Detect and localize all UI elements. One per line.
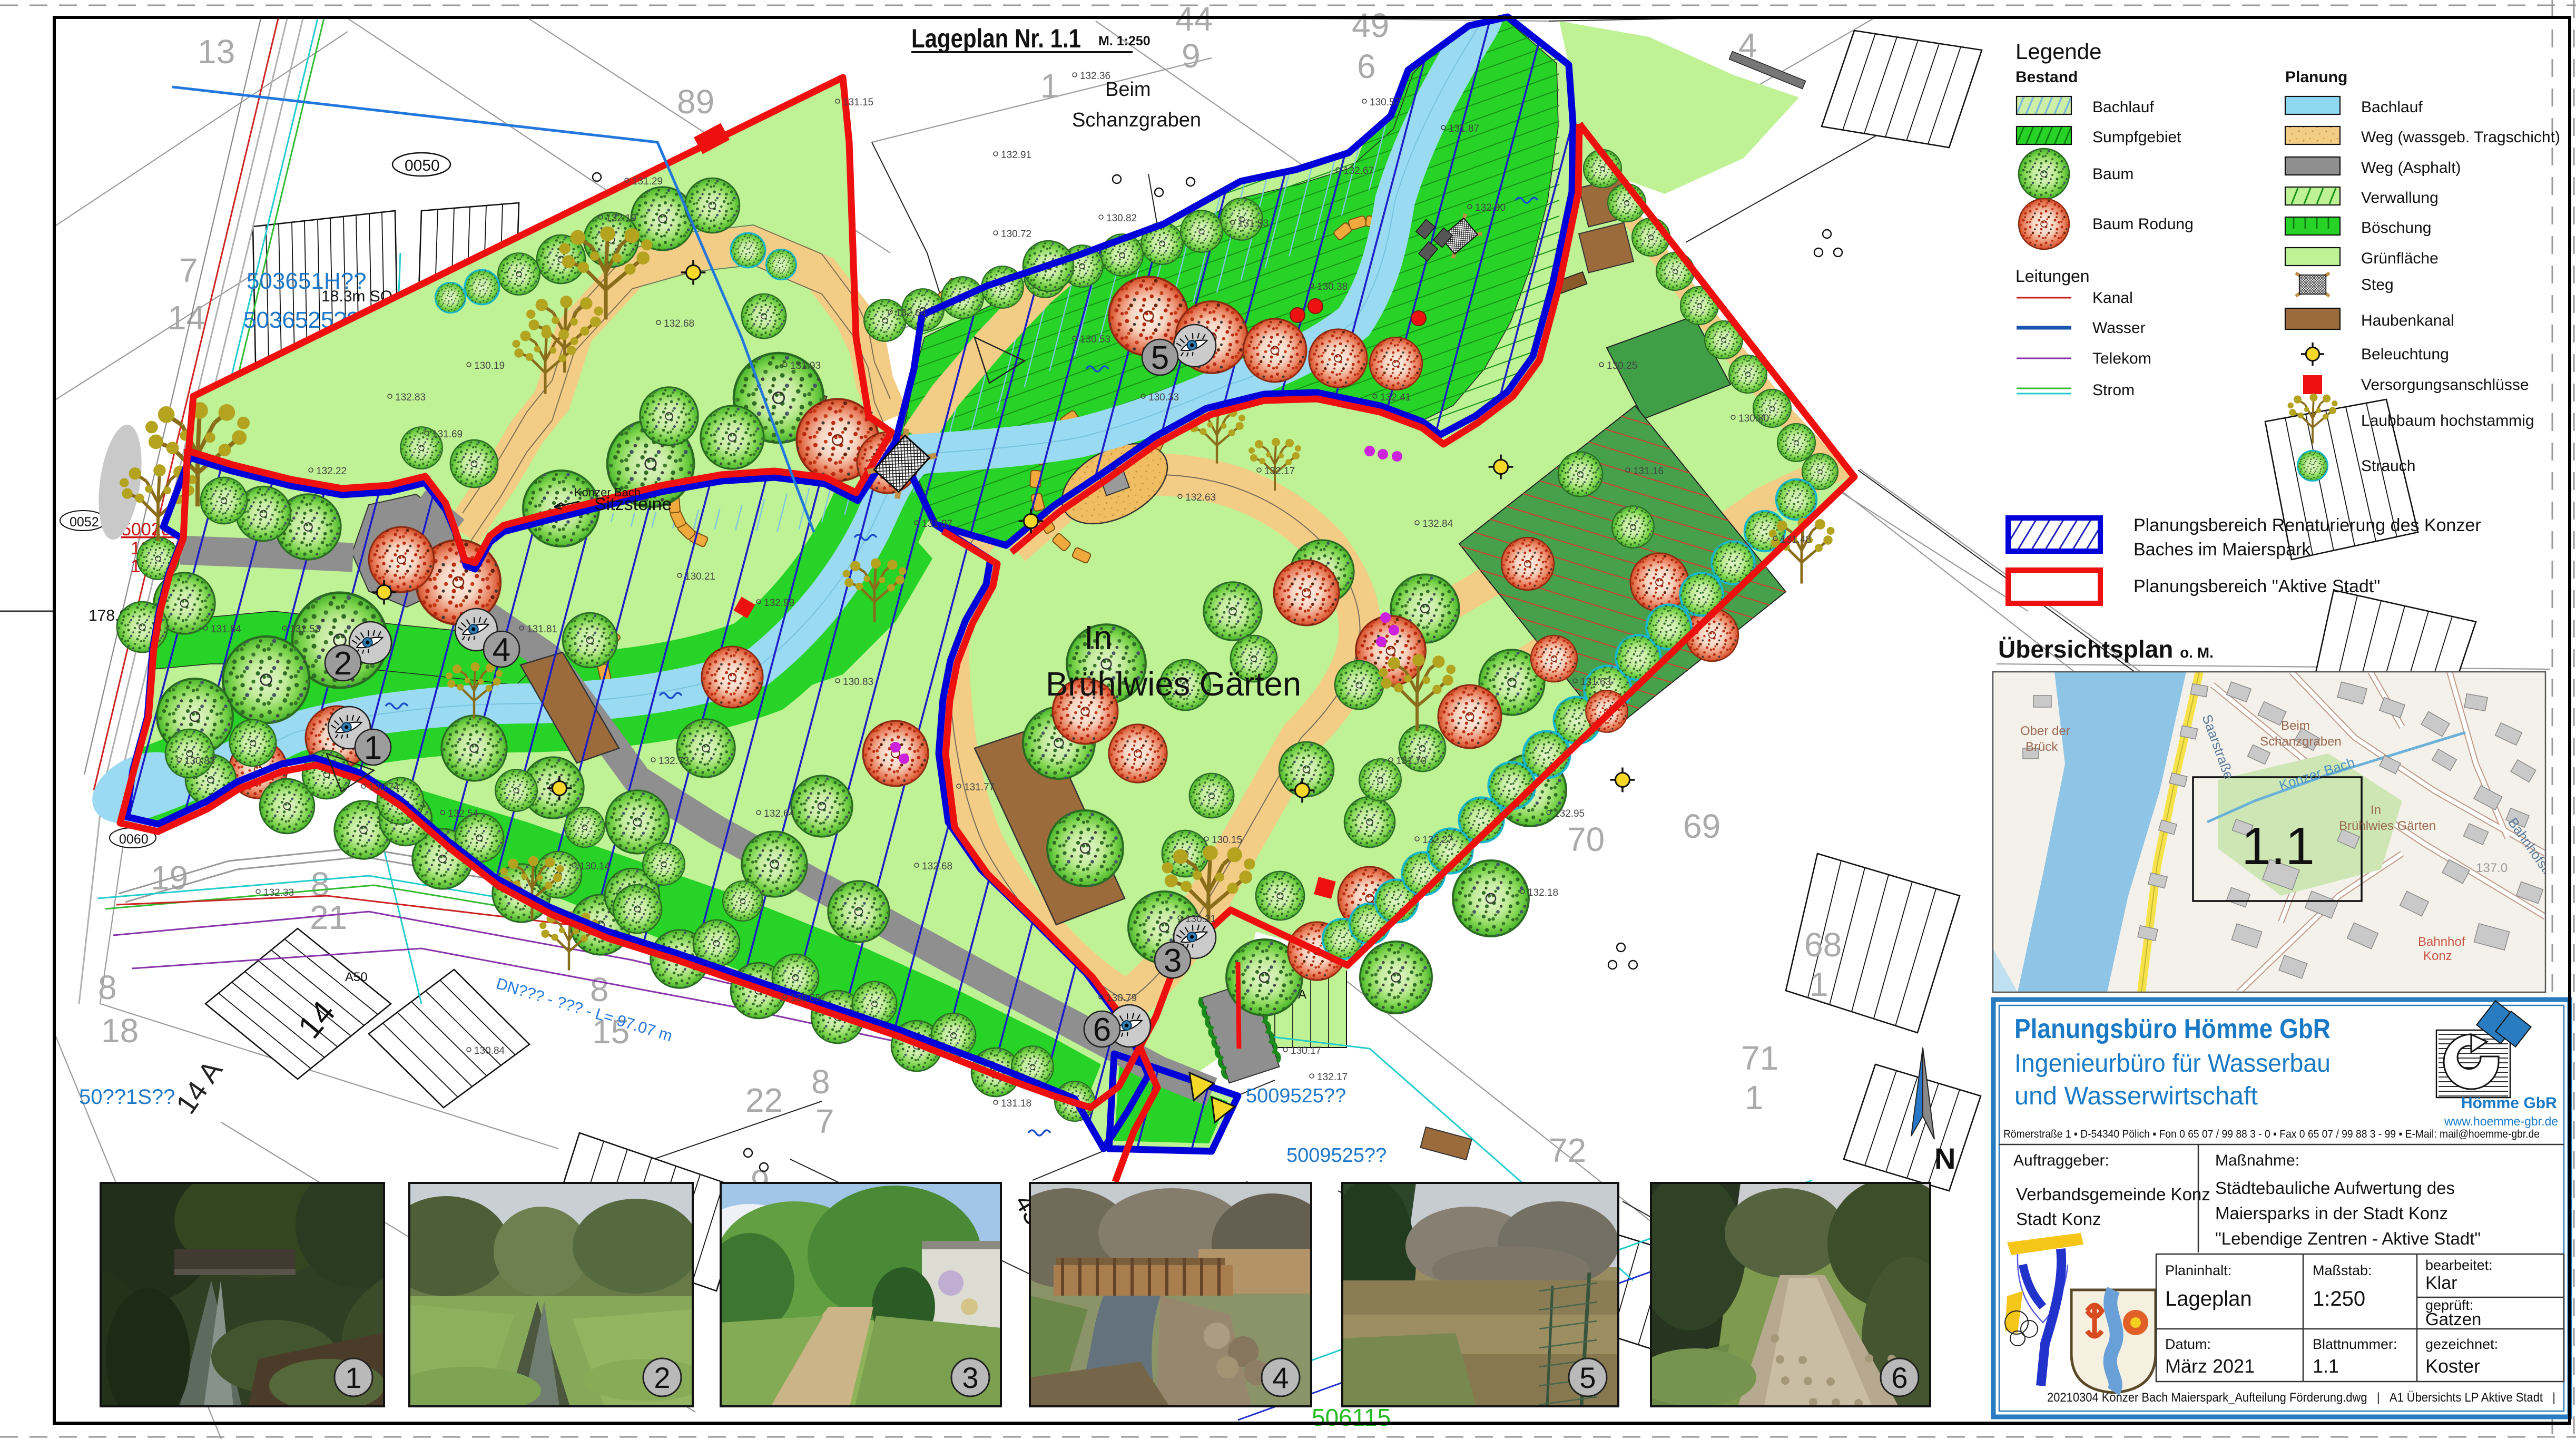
svg-text:Weg (Asphalt): Weg (Asphalt) [2361,159,2461,177]
svg-text:132.36: 132.36 [1080,71,1110,82]
svg-text:72: 72 [1549,1131,1586,1169]
svg-text:131.93: 131.93 [790,360,821,371]
svg-text:Steg: Steg [2361,276,2394,293]
svg-text:N: N [1934,1142,1955,1175]
svg-text:131.18: 131.18 [1001,1098,1031,1109]
svg-text:7: 7 [179,251,198,289]
svg-text:0052: 0052 [70,515,99,530]
svg-text:132.17: 132.17 [1264,466,1295,477]
svg-text:Planungsbüro Hömme GbR: Planungsbüro Hömme GbR [2014,1014,2331,1044]
svg-text:Bahnhof: Bahnhof [2418,935,2465,949]
svg-text:Haubenkanal: Haubenkanal [2361,312,2454,329]
svg-text:6: 6 [1093,1012,1111,1048]
svg-text:131.15: 131.15 [843,97,873,108]
svg-text:In: In [1084,619,1112,657]
svg-text:132.27: 132.27 [1422,835,1453,846]
svg-text:131.81: 131.81 [527,624,557,635]
svg-text:Planungsbereich "Aktive Stadt": Planungsbereich "Aktive Stadt" [2133,576,2380,596]
svg-text:130.83: 130.83 [184,756,215,767]
svg-text:Baum: Baum [2092,165,2133,183]
svg-text:Stadt Konz: Stadt Konz [2016,1209,2101,1229]
svg-text:Maiersparks in der Stadt Konz: Maiersparks in der Stadt Konz [2215,1203,2448,1223]
svg-text:132.19: 132.19 [606,213,636,224]
svg-text:M. 1:250: M. 1:250 [1098,34,1151,48]
svg-text:5: 5 [1579,1361,1596,1394]
svg-text:4: 4 [1272,1361,1289,1394]
svg-text:Bachlauf: Bachlauf [2092,99,2154,116]
svg-text:8: 8 [811,1063,830,1101]
svg-text:132.83: 132.83 [395,392,426,403]
svg-text:132.17: 132.17 [1317,1072,1348,1083]
svg-text:21: 21 [310,898,347,936]
svg-text:130.14: 130.14 [579,861,611,872]
svg-text:Verbandsgemeinde Konz: Verbandsgemeinde Konz [2016,1185,2210,1204]
svg-text:Wasser: Wasser [2092,319,2146,337]
svg-text:März 2021: März 2021 [2165,1355,2255,1377]
svg-text:4: 4 [493,632,510,668]
svg-text:130.80: 130.80 [1738,413,1769,424]
svg-text:130.57: 130.57 [1370,97,1400,108]
svg-text:Koster: Koster [2425,1355,2480,1377]
svg-text:130.33: 130.33 [1148,392,1179,403]
svg-text:130.74: 130.74 [369,782,400,793]
svg-text:1: 1 [1810,965,1828,1003]
svg-text:Blattnummer:: Blattnummer: [2313,1336,2397,1352]
svg-text:132.63: 132.63 [1185,492,1216,503]
svg-text:1: 1 [1040,67,1059,105]
svg-text:Beim: Beim [1105,79,1151,101]
svg-text:131.70: 131.70 [1396,756,1427,767]
svg-text:Baum Rodung: Baum Rodung [2092,216,2194,233]
svg-text:131.53: 131.53 [1238,218,1269,229]
svg-text:Gatzen: Gatzen [2425,1309,2481,1329]
svg-text:Strauch: Strauch [2361,457,2415,475]
svg-text:130.25: 130.25 [1607,360,1637,371]
svg-text:"Lebendige Zentren - Aktive S: "Lebendige Zentren - Aktive Stadt" [2215,1229,2481,1248]
svg-text:130.82: 130.82 [1106,213,1137,224]
svg-text:Ingenieurbüro für Wasserbau: Ingenieurbüro für Wasserbau [2014,1050,2331,1078]
svg-text:Beim: Beim [2281,719,2310,733]
svg-text:Böschung: Böschung [2361,219,2431,237]
svg-text:Strom: Strom [2092,381,2135,399]
svg-text:132.54: 132.54 [448,808,479,819]
svg-text:49: 49 [1352,6,1389,44]
svg-text:130.79: 130.79 [1106,993,1137,1004]
svg-text:131.77: 131.77 [964,782,995,793]
svg-text:und Wasserwirtschaft: und Wasserwirtschaft [2014,1082,2258,1110]
svg-text:130.65: 130.65 [790,993,821,1004]
svg-text:132.64: 132.64 [896,308,927,319]
svg-text:3: 3 [1164,943,1182,979]
svg-text:In: In [2371,803,2381,817]
svg-text:1: 1 [345,1361,361,1394]
svg-text:A50: A50 [345,970,368,984]
svg-text:71: 71 [1741,1039,1778,1077]
svg-text:137.0: 137.0 [2476,861,2508,875]
svg-text:130.19: 130.19 [474,360,505,371]
svg-text:69: 69 [1683,807,1720,845]
svg-text:9: 9 [1182,37,1201,75]
svg-text:20210304 Konzer Bach Maierspar: 20210304 Konzer Bach Maierspark_Aufteilu… [2047,1391,2555,1405]
svg-text:68: 68 [1804,926,1842,964]
svg-text:132.68: 132.68 [922,861,952,872]
svg-text:130.21: 130.21 [1185,914,1216,925]
svg-text:Versorgungsanschlüsse: Versorgungsanschlüsse [2361,376,2529,394]
svg-text:Lageplan: Lageplan [2165,1287,2252,1310]
svg-text:132.67: 132.67 [1343,165,1374,177]
svg-text:132.68: 132.68 [664,318,694,329]
svg-text:132.91: 132.91 [1001,150,1031,161]
svg-text:131.29: 131.29 [632,176,663,187]
svg-text:130.72: 130.72 [1001,229,1031,240]
svg-text:1: 1 [364,730,382,766]
svg-text:Legende: Legende [2015,39,2102,64]
svg-text:Ober der: Ober der [2020,724,2070,738]
svg-text:Brück: Brück [2026,740,2058,754]
svg-text:131.87: 131.87 [1449,123,1479,134]
svg-text:131.16: 131.16 [1633,466,1664,477]
svg-text:Planung: Planung [2285,68,2347,86]
svg-text:0060: 0060 [119,832,149,847]
svg-text:3: 3 [962,1361,978,1394]
svg-text:131.48: 131.48 [1781,534,1811,545]
svg-text:130.17: 130.17 [1291,1045,1321,1056]
svg-text:Hömme GbR: Hömme GbR [2461,1094,2557,1112]
svg-text:506115: 506115 [1312,1404,1391,1431]
svg-text:Planungsbereich Renaturierung: Planungsbereich Renaturierung des Konzer [2133,515,2481,535]
svg-text:131.97: 131.97 [922,518,952,530]
svg-text:Planinhalt:: Planinhalt: [2165,1262,2231,1278]
svg-text:130.53: 130.53 [1080,334,1110,345]
svg-text:130.83: 130.83 [843,677,873,688]
svg-text:Kanal: Kanal [2092,289,2133,307]
svg-text:Telekom: Telekom [2092,350,2151,367]
svg-text:Brühlwies Gärten: Brühlwies Gärten [1046,665,1301,703]
svg-text:Konzer Bach: Konzer Bach [574,486,641,499]
svg-text:Verwallung: Verwallung [2361,189,2439,207]
svg-text:6: 6 [1891,1361,1908,1394]
svg-text:Maßstab:: Maßstab: [2313,1262,2372,1278]
svg-text:Bestand: Bestand [2015,68,2078,86]
svg-text:Weg (wassgeb. Tragschicht): Weg (wassgeb. Tragschicht) [2361,129,2560,146]
svg-text:130.84: 130.84 [474,1045,505,1056]
svg-text:132.64: 132.64 [764,808,795,819]
svg-text:Brühlwies Gärten: Brühlwies Gärten [2339,819,2436,833]
svg-text:14: 14 [168,299,205,337]
svg-text:Beleuchtung: Beleuchtung [2361,346,2449,363]
svg-text:50??1S??: 50??1S?? [79,1085,175,1109]
svg-text:Schanzgraben: Schanzgraben [2260,735,2342,749]
svg-text:89: 89 [677,83,714,121]
svg-text:www.hoemme-gbr.de: www.hoemme-gbr.de [2444,1114,2558,1128]
svg-text:70: 70 [1567,820,1605,858]
svg-text:1.1: 1.1 [2313,1355,2339,1377]
svg-text:132.33: 132.33 [263,887,294,898]
svg-text:1.1: 1.1 [2241,817,2315,876]
svg-text:Baches im Maierspark: Baches im Maierspark [2133,540,2311,560]
svg-text:5009525??: 5009525?? [1246,1085,1346,1107]
svg-text:13: 13 [198,33,235,71]
svg-text:Klar: Klar [2425,1273,2457,1293]
svg-text:18: 18 [101,1012,139,1050]
svg-text:6: 6 [1357,47,1376,85]
svg-text:gezeichnet:: gezeichnet: [2425,1336,2498,1352]
svg-text:Schanzgraben: Schanzgraben [1072,109,1201,131]
svg-text:Auftraggeber:: Auftraggeber: [2013,1152,2109,1169]
svg-text:1: 1 [1745,1079,1764,1117]
svg-text:Maßnahme:: Maßnahme: [2215,1152,2299,1169]
svg-text:5: 5 [1151,340,1169,376]
svg-text:Konz: Konz [2423,949,2452,963]
svg-text:Grünfläche: Grünfläche [2361,250,2439,267]
svg-text:131.69: 131.69 [432,429,463,440]
svg-text:Leitungen: Leitungen [2015,267,2090,286]
svg-text:130.15: 130.15 [1212,835,1242,846]
svg-text:130.21: 130.21 [685,571,715,582]
svg-text:Städtebauliche Aufwertung des: Städtebauliche Aufwertung des [2215,1178,2455,1198]
svg-text:131.63: 131.63 [1580,677,1611,688]
svg-text:2: 2 [334,645,352,682]
svg-text:7: 7 [815,1102,834,1140]
svg-text:131.84: 131.84 [211,624,242,635]
svg-text:8: 8 [98,968,117,1006]
svg-text:130.38: 130.38 [1317,281,1348,292]
svg-text:132.99: 132.99 [764,598,794,609]
svg-text:131.53: 131.53 [290,624,320,635]
svg-text:132.18: 132.18 [1528,887,1558,898]
svg-text:0050: 0050 [405,157,440,174]
svg-text:132.90: 132.90 [1475,202,1506,213]
svg-text:8: 8 [311,865,330,903]
svg-text:132.73: 132.73 [658,756,689,767]
svg-text:132.41: 132.41 [1380,392,1411,403]
svg-text:8: 8 [590,971,609,1009]
svg-text:1:250: 1:250 [2313,1287,2365,1310]
svg-text:Lageplan Nr. 1.1: Lageplan Nr. 1.1 [911,24,1081,53]
svg-text:2: 2 [654,1361,670,1394]
svg-text:132.95: 132.95 [1554,808,1585,819]
svg-text:Datum:: Datum: [2165,1336,2211,1352]
svg-text:Sumpfgebiet: Sumpfgebiet [2092,129,2181,146]
svg-text:132.22: 132.22 [316,466,347,477]
svg-text:Römerstraße 1 ▪ D-54340 Pölich: Römerstraße 1 ▪ D-54340 Pölich ▪ Fon 0 6… [2003,1128,2540,1140]
svg-text:Bachlauf: Bachlauf [2361,99,2423,116]
svg-text:132.84: 132.84 [1422,518,1453,530]
svg-text:22: 22 [745,1081,783,1119]
svg-text:5009525??: 5009525?? [1286,1144,1387,1167]
svg-text:Laubbaum hochstammig: Laubbaum hochstammig [2361,412,2534,429]
svg-text:bearbeitet:: bearbeitet: [2425,1257,2493,1273]
